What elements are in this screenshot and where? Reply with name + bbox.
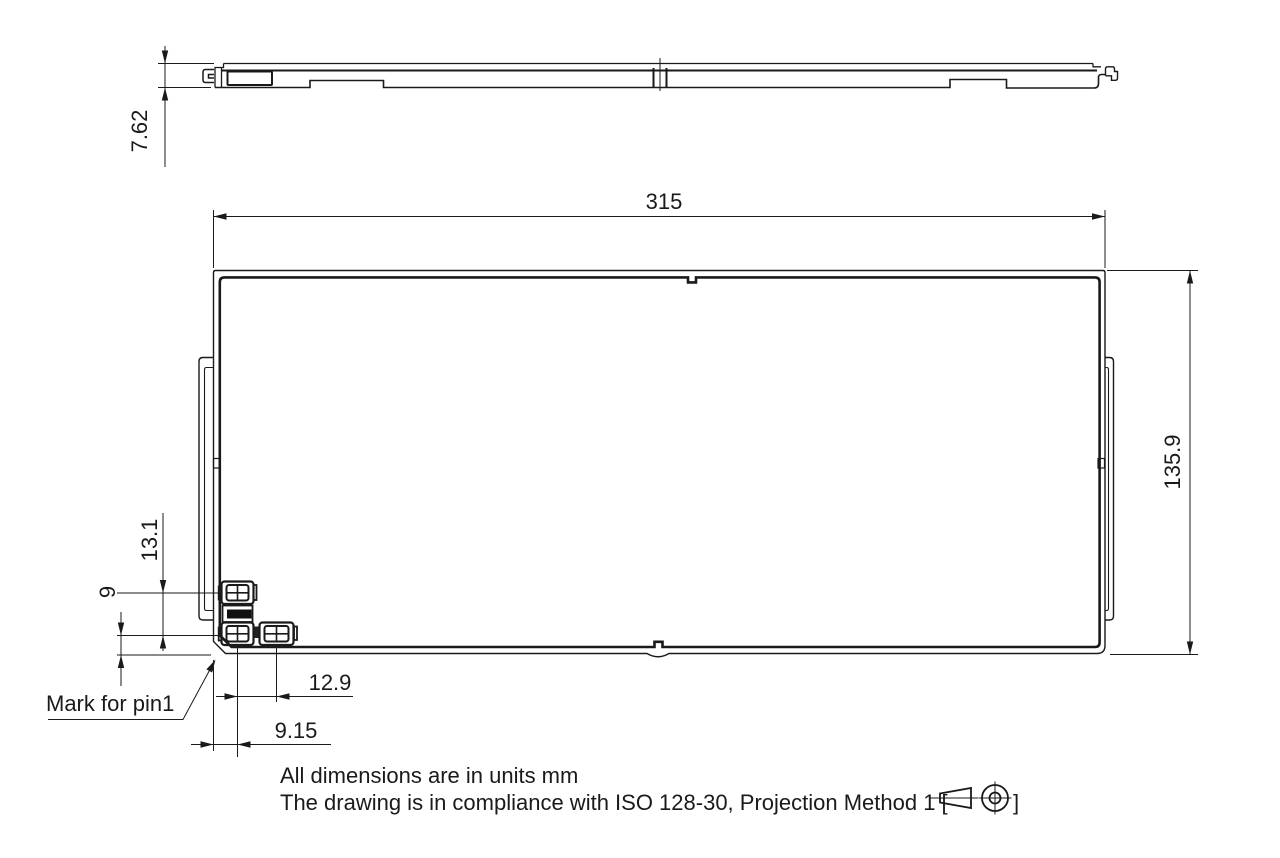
arrow-up-icon [118, 655, 124, 668]
side-right-hook [1106, 67, 1118, 81]
connector-crosslines [227, 585, 249, 601]
dim-height-value: 135.9 [1160, 434, 1185, 489]
left-tab-inner [205, 368, 214, 611]
arrow-down-icon [118, 623, 124, 636]
drawing-notes: All dimensions are in units mm The drawi… [280, 763, 1019, 815]
pin1-mark-label: Mark for pin1 [46, 691, 174, 716]
arrow-up-right-icon [206, 660, 215, 673]
dim-connector-row-offset-value: 13.1 [137, 519, 162, 562]
arrow-down-icon [1187, 642, 1193, 655]
arrow-right-icon [225, 693, 238, 699]
arrow-up-icon [160, 636, 166, 649]
side-view [203, 58, 1118, 91]
projection-crosshair [979, 782, 1012, 815]
note-compliance-close-bracket: ] [1013, 790, 1019, 815]
panel-bezel-outline [220, 277, 1100, 647]
dim-height: 135.9 [1107, 271, 1198, 655]
arrow-right-icon [201, 741, 214, 747]
dim-connector-row-offset: 13.1 [117, 513, 222, 651]
note-compliance: The drawing is in compliance with ISO 12… [280, 790, 948, 815]
connector-right-tab [294, 627, 297, 641]
block-fill [227, 610, 252, 619]
dim-thickness-extension-lines [158, 64, 214, 88]
front-view [199, 271, 1114, 657]
connector-bottom-right [260, 623, 298, 646]
dim-width-extension-lines [214, 210, 1106, 268]
panel-outer-outline [214, 271, 1106, 657]
panel-outline-drawing: 7.62 [0, 0, 1280, 858]
pin1-mark: Mark for pin1 [46, 660, 216, 720]
connector-crosslines [227, 626, 249, 642]
connector-middle-block [223, 606, 253, 623]
arrow-up-icon [1187, 271, 1193, 284]
connector-crosslines [265, 626, 289, 642]
right-tab-outer [1105, 358, 1114, 621]
side-label-area [228, 72, 273, 86]
arrow-up-icon [162, 88, 168, 101]
arrow-left-icon [238, 741, 251, 747]
note-units: All dimensions are in units mm [280, 763, 578, 788]
dim-pin1-offset-value: 9.15 [275, 718, 318, 743]
arrow-right-icon [1092, 213, 1105, 219]
side-left-hook [203, 70, 214, 83]
connector-top [219, 582, 257, 605]
dim-thickness-value: 7.62 [127, 110, 152, 153]
arrow-left-icon [277, 693, 290, 699]
arrow-down-icon [162, 51, 168, 64]
left-tab-outer [199, 358, 214, 621]
technical-drawing-page: 7.62 [0, 0, 1280, 858]
dim-thickness: 7.62 [127, 46, 214, 167]
dim-13-extension-lines [117, 593, 222, 636]
connector-right-tab [254, 585, 257, 600]
dim-width: 315 [214, 189, 1106, 268]
connector-bottom-left [219, 623, 254, 646]
dim-12-extension-lines [238, 648, 277, 757]
connector-gap-bar [255, 627, 259, 639]
dim-connector-pitch-value: 12.9 [309, 670, 352, 695]
arrow-down-icon [160, 580, 166, 593]
side-left-bracket [215, 64, 224, 88]
dim-width-value: 315 [646, 189, 683, 214]
side-top-right-step [1093, 64, 1101, 67]
arrow-left-icon [214, 213, 227, 219]
dim-connector-bottom-offset-value: 9 [95, 586, 120, 598]
